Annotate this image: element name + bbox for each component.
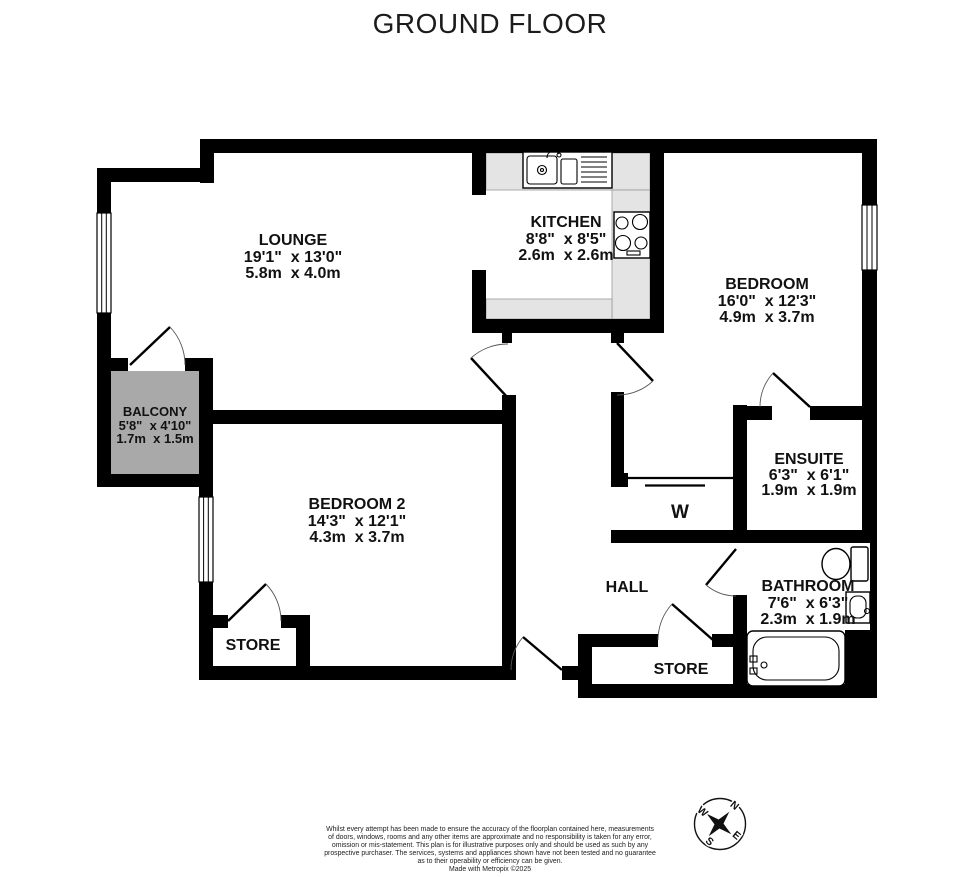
door-hall-bedroom <box>617 343 653 395</box>
bathtub <box>747 631 845 686</box>
hall-wall <box>611 392 624 487</box>
compass-e: E <box>730 829 743 843</box>
kitchen-wall-right <box>650 139 664 333</box>
room-label-bedroom2: BEDROOM 2 14'3" x 12'1" 4.3m x 3.7m <box>308 496 406 546</box>
window-lounge <box>97 213 111 313</box>
bedroom2-name: BEDROOM 2 <box>309 496 406 513</box>
disclaimer-line: Whilst every attempt has been made to en… <box>250 826 730 834</box>
lounge-imperial: 19'1" x 13'0" <box>244 249 342 266</box>
windows <box>97 205 877 582</box>
balcony-wall-right <box>199 358 213 487</box>
bed-ensuite-divider-r <box>810 406 877 420</box>
room-label-kitchen: KITCHEN 8'8" x 8'5" 2.6m x 2.6m <box>518 214 613 264</box>
wall-top <box>200 139 877 153</box>
bathroom-imperial: 7'6" x 6'3" <box>768 595 849 612</box>
bedroom2-imperial: 14'3" x 12'1" <box>308 513 406 530</box>
disclaimer-line: as to their operability or efficiency ca… <box>250 858 730 866</box>
sliding-door-wardrobe <box>628 478 737 486</box>
floorplan-drawing: LOUNGE 19'1" x 13'0" 5.8m x 4.0m KITCHEN… <box>0 0 980 877</box>
door-hall-bathroom <box>706 549 736 596</box>
door-entry <box>511 637 562 670</box>
door-store-left <box>228 584 281 621</box>
balcony-wall-top-left <box>97 358 128 371</box>
kitchen-metric: 2.6m x 2.6m <box>518 247 613 264</box>
metropix-credit: Made with Metropix ©2025 <box>250 866 730 874</box>
wall-bed2-left-a <box>199 487 213 497</box>
bathroom-name: BATHROOM <box>761 578 854 595</box>
wardrobe-bath-divider <box>611 530 877 543</box>
window-bedroom2 <box>199 497 213 582</box>
bedroom-name: BEDROOM <box>725 276 809 293</box>
room-label-store-left: STORE <box>226 637 281 654</box>
door-bedroom-ensuite <box>760 373 810 407</box>
storeL-right <box>296 615 310 680</box>
kitchen-sink-unit <box>523 151 612 188</box>
hall-wall-stub <box>611 333 624 343</box>
window-bedroom <box>862 205 877 270</box>
wall-topleft <box>97 168 214 182</box>
disclaimer: Whilst every attempt has been made to en… <box>250 826 730 873</box>
bath-corner-block <box>845 630 877 686</box>
door-lounge-hall <box>471 344 508 398</box>
kitchen-wall-bottom <box>472 319 664 333</box>
balcony-metric: 1.7m x 1.5m <box>116 431 193 446</box>
wall-entry-stub <box>562 666 578 680</box>
wall-bed2-left-b <box>199 582 213 680</box>
kitchen-wall-left-up <box>472 139 486 195</box>
wall-bottom-main <box>199 666 516 680</box>
wall-lounge-bed2-divider <box>213 410 516 424</box>
floorplan-page: GROUND FLOOR <box>0 0 980 877</box>
ensuite-name: ENSUITE <box>774 451 844 468</box>
compass-w: W <box>695 804 710 820</box>
kitchen-hob <box>614 212 650 258</box>
room-label-wardrobe: W <box>671 502 689 523</box>
kitchen-name: KITCHEN <box>530 214 601 231</box>
room-label-bedroom: BEDROOM 16'0" x 12'3" 4.9m x 3.7m <box>718 276 816 326</box>
lounge-name: LOUNGE <box>259 232 328 249</box>
door-store-right <box>658 604 713 640</box>
room-label-lounge: LOUNGE 19'1" x 13'0" 5.8m x 4.0m <box>244 232 342 282</box>
ensuite-wall-left <box>733 405 747 543</box>
room-label-store-right: STORE <box>654 661 709 678</box>
wall-bed2-right <box>502 395 516 680</box>
bedroom2-metric: 4.3m x 3.7m <box>309 529 404 546</box>
balcony-wall-bottom <box>97 474 213 487</box>
storeL-top-left <box>213 615 228 628</box>
disclaimer-line: prospective purchaser. The services, sys… <box>250 850 730 858</box>
wall-right-upper <box>862 139 877 205</box>
room-label-hall: HALL <box>606 579 649 596</box>
bathroom-wall-left <box>733 595 747 684</box>
room-label-ensuite: ENSUITE 6'3" x 6'1" 1.9m x 1.9m <box>761 451 856 499</box>
ensuite-metric: 1.9m x 1.9m <box>761 482 856 499</box>
bathroom-metric: 2.3m x 1.9m <box>760 611 855 628</box>
disclaimer-line: omission or mis-statement. This plan is … <box>250 842 730 850</box>
room-label-bathroom: BATHROOM 7'6" x 6'3" 2.3m x 1.9m <box>760 578 855 628</box>
toilet <box>822 547 868 581</box>
bedroom-imperial: 16'0" x 12'3" <box>718 293 816 310</box>
disclaimer-line: of doors, windows, rooms and any other i… <box>250 834 730 842</box>
storeR-top-left <box>578 634 658 647</box>
door-balcony <box>130 327 185 365</box>
kitchen-imperial: 8'8" x 8'5" <box>526 231 607 248</box>
bed-ensuite-divider-l <box>733 406 772 420</box>
lounge-metric: 5.8m x 4.0m <box>245 265 340 282</box>
balcony-name: BALCONY <box>123 404 188 419</box>
room-label-balcony: BALCONY 5'8" x 4'10" 1.7m x 1.5m <box>116 404 193 446</box>
wall-left-mid <box>97 313 111 487</box>
doors <box>130 327 810 670</box>
wall-left-upper <box>97 168 111 213</box>
wardrobe-front-stub <box>611 473 628 487</box>
bedroom-metric: 4.9m x 3.7m <box>719 309 814 326</box>
